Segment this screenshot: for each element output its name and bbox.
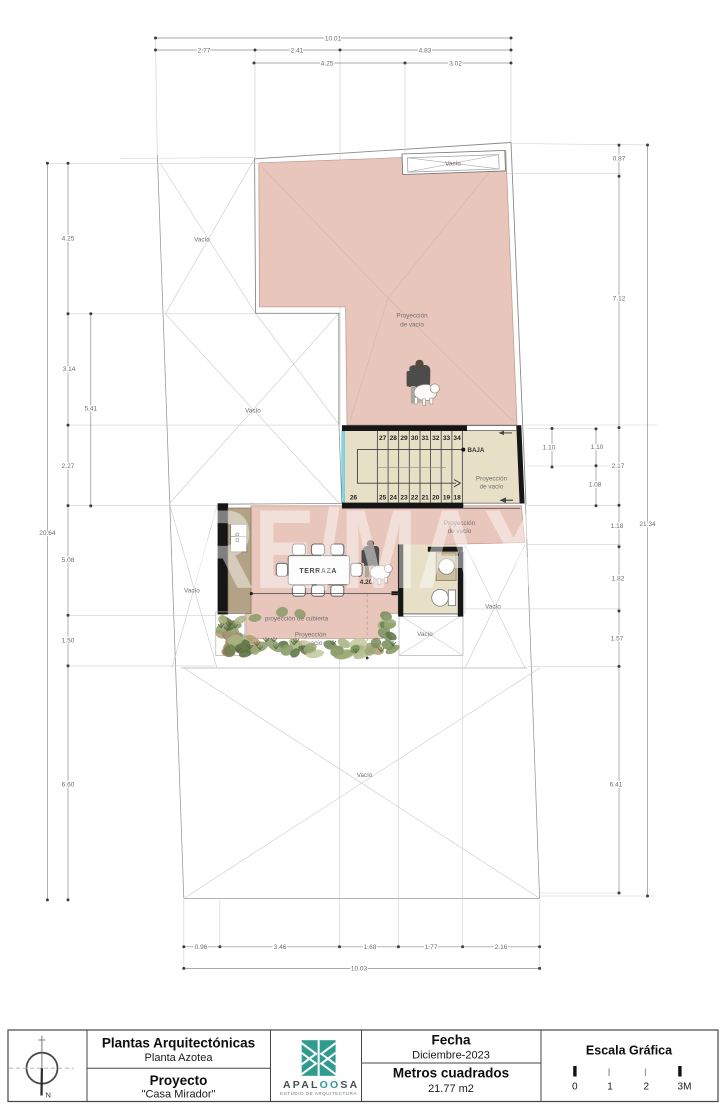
- svg-text:10.01: 10.01: [325, 35, 342, 42]
- svg-text:3.46: 3.46: [274, 944, 287, 951]
- svg-text:0: 0: [572, 1082, 578, 1093]
- svg-text:1.10: 1.10: [543, 445, 556, 452]
- svg-text:20.64: 20.64: [39, 530, 56, 537]
- svg-text:Fecha: Fecha: [431, 1033, 471, 1048]
- svg-text:5.08: 5.08: [62, 557, 75, 564]
- svg-text:10.03: 10.03: [351, 966, 368, 973]
- svg-text:Proyecto: Proyecto: [150, 1073, 208, 1088]
- svg-text:7.12: 7.12: [613, 295, 626, 302]
- svg-text:4.83: 4.83: [419, 47, 432, 54]
- svg-text:34: 34: [453, 435, 461, 442]
- svg-text:1.82: 1.82: [612, 575, 625, 582]
- svg-text:Proyección: Proyección: [295, 632, 327, 639]
- svg-text:1.08: 1.08: [589, 482, 602, 489]
- svg-text:1.68: 1.68: [364, 944, 377, 951]
- svg-text:6.60: 6.60: [62, 782, 75, 789]
- svg-text:1.77: 1.77: [425, 944, 438, 951]
- svg-text:21.77 m2: 21.77 m2: [428, 1083, 474, 1095]
- svg-text:1.50: 1.50: [62, 638, 75, 645]
- svg-text:4.25: 4.25: [321, 60, 334, 67]
- svg-text:30: 30: [411, 435, 419, 442]
- svg-text:1.57: 1.57: [611, 635, 624, 642]
- svg-text:27: 27: [379, 435, 387, 442]
- svg-text:2.17: 2.17: [612, 463, 625, 470]
- svg-text:de vacío: de vacío: [400, 322, 424, 329]
- svg-text:Plantas Arquitectónicas: Plantas Arquitectónicas: [102, 1036, 255, 1051]
- svg-text:Vacío: Vacío: [245, 408, 261, 415]
- svg-text:2.77: 2.77: [198, 47, 211, 54]
- svg-text:Vacío: Vacío: [417, 631, 433, 638]
- svg-text:32: 32: [432, 435, 440, 442]
- svg-text:4.25: 4.25: [62, 235, 75, 242]
- svg-text:Vacío: Vacío: [194, 237, 210, 244]
- svg-text:3.14: 3.14: [63, 366, 76, 373]
- svg-text:0.96: 0.96: [195, 944, 208, 951]
- svg-text:Proyección: Proyección: [476, 476, 508, 483]
- svg-text:Escala Gráfica: Escala Gráfica: [586, 1044, 673, 1058]
- svg-text:APALOOSA: APALOOSA: [283, 1079, 359, 1091]
- svg-text:29: 29: [400, 435, 408, 442]
- svg-text:3M: 3M: [678, 1082, 692, 1093]
- svg-text:1.10: 1.10: [591, 444, 604, 451]
- svg-text:31: 31: [422, 435, 430, 442]
- svg-text:"Casa Mirador": "Casa Mirador": [142, 1089, 216, 1101]
- svg-text:Proyección: Proyección: [396, 313, 428, 320]
- svg-text:Metros cuadrados: Metros cuadrados: [393, 1066, 509, 1081]
- svg-text:0.87: 0.87: [613, 155, 626, 162]
- svg-text:2.27: 2.27: [62, 463, 75, 470]
- svg-text:1: 1: [607, 1082, 613, 1093]
- svg-text:28: 28: [390, 435, 398, 442]
- svg-text:N: N: [46, 1091, 51, 1100]
- svg-text:Vacío: Vacío: [445, 160, 461, 168]
- svg-text:2.16: 2.16: [495, 944, 508, 951]
- svg-text:BAJA: BAJA: [468, 447, 485, 454]
- svg-text:RE/MAX: RE/MAX: [188, 487, 544, 612]
- svg-text:33: 33: [443, 435, 451, 442]
- svg-text:Vacío: Vacío: [357, 772, 373, 779]
- svg-text:Diciembre-2023: Diciembre-2023: [412, 1050, 490, 1062]
- svg-text:2: 2: [644, 1082, 650, 1093]
- svg-text:2.41: 2.41: [291, 47, 304, 54]
- svg-text:21.34: 21.34: [639, 521, 656, 528]
- svg-text:6.41: 6.41: [610, 781, 623, 788]
- svg-text:Planta Azotea: Planta Azotea: [145, 1052, 214, 1064]
- svg-text:1.18: 1.18: [611, 523, 624, 530]
- svg-text:3.02: 3.02: [449, 60, 462, 67]
- svg-text:ESTUDIO DE ARQUITECTURA: ESTUDIO DE ARQUITECTURA: [280, 1091, 357, 1096]
- svg-text:5.41: 5.41: [84, 406, 97, 413]
